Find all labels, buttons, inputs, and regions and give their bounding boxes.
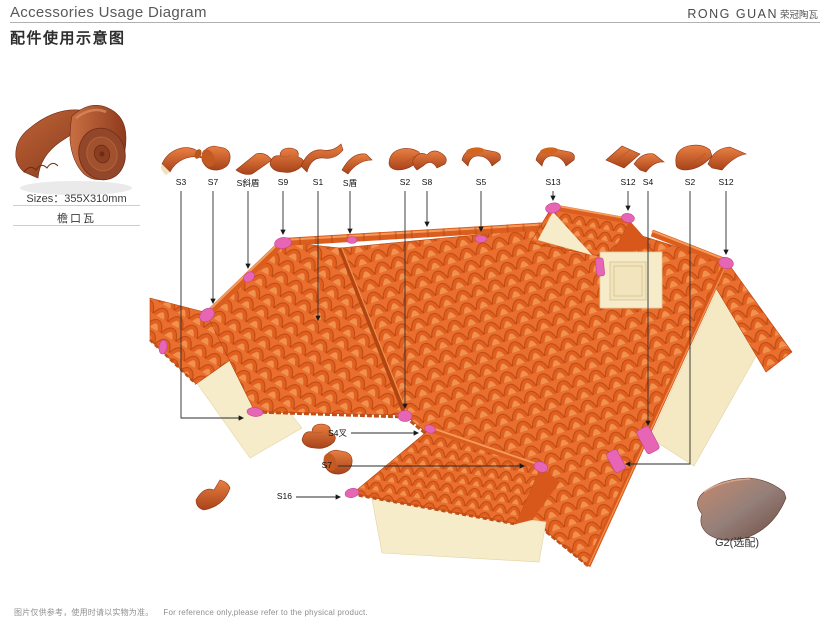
accessory-thumbnails bbox=[161, 144, 746, 175]
catalog-page: Accessories Usage Diagram RONG GUAN荣冠陶瓦 … bbox=[0, 0, 830, 624]
part-label-s2b: S2 bbox=[685, 177, 695, 187]
part-label-s-dun: S盾 bbox=[343, 177, 357, 189]
footer-note-en: For reference only,please refer to the p… bbox=[163, 608, 368, 617]
part-label-s12b: S12 bbox=[718, 177, 733, 187]
product-divider bbox=[13, 205, 140, 206]
dormer-window bbox=[600, 252, 662, 308]
footer-disclaimer: 图片仅供参考，使用时请以实物为准。For reference only,plea… bbox=[14, 607, 368, 618]
footer-note-cn: 图片仅供参考，使用时请以实物为准。 bbox=[14, 608, 153, 617]
part-label-s4cha: S4叉 bbox=[328, 427, 347, 439]
part-label-s8: S8 bbox=[422, 177, 432, 187]
part-label-s-xiedun: S斜盾 bbox=[237, 177, 260, 189]
eave-tile-photo bbox=[16, 105, 132, 195]
product-sizes: Sizes：355X310mm bbox=[13, 190, 140, 206]
part-label-s3: S3 bbox=[176, 177, 186, 187]
product-divider bbox=[13, 225, 140, 226]
part-label-s4: S4 bbox=[643, 177, 653, 187]
roof-illustration bbox=[0, 0, 830, 624]
part-label-s16: S16 bbox=[277, 491, 292, 501]
part-label-s2: S2 bbox=[400, 177, 410, 187]
g2-tile bbox=[697, 478, 786, 540]
optional-part-label: G2(选配) bbox=[715, 534, 759, 550]
product-name: 檐口瓦 bbox=[13, 210, 140, 226]
part-label-s9: S9 bbox=[278, 177, 288, 187]
part-label-s1: S1 bbox=[313, 177, 323, 187]
part-label-s12: S12 bbox=[620, 177, 635, 187]
part-label-s7-callout: S7 bbox=[322, 460, 332, 470]
part-label-s7: S7 bbox=[208, 177, 218, 187]
part-label-s13: S13 bbox=[545, 177, 560, 187]
part-label-s5: S5 bbox=[476, 177, 486, 187]
